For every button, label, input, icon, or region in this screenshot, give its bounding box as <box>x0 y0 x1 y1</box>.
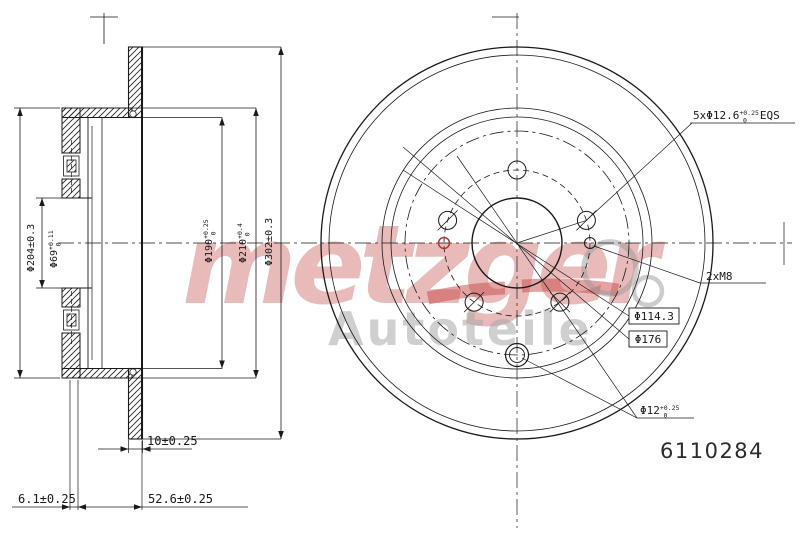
dim-label-bore: Φ69+0.110 <box>47 230 63 268</box>
hat-face-upper-inner-section <box>62 179 80 198</box>
arrowhead <box>17 370 23 378</box>
dim-label-outer-diameter: Φ302±0.3 <box>264 218 275 266</box>
arrowhead <box>253 108 259 116</box>
arrowhead <box>278 431 284 439</box>
technical-drawing-canvas: metzger Autoteile <box>0 0 800 533</box>
arrowhead <box>219 118 225 126</box>
arrowhead <box>253 370 259 378</box>
dim-label-thickness: 10±0.25 <box>147 434 198 448</box>
dim-label-hat-face-thickness: 6.1±0.25 <box>18 492 76 506</box>
arrowhead <box>17 108 23 116</box>
label-service-thread: 2xM8 <box>706 270 733 283</box>
arrowhead <box>39 198 45 206</box>
dim-label-overall-height: 52.6±0.25 <box>148 492 213 506</box>
arrowhead <box>134 504 142 510</box>
cross-section-view: Φ204±0.3 Φ69+0.110 Φ190+0.250 Φ210+0.40 … <box>12 13 284 510</box>
arrowhead <box>121 446 129 452</box>
hat-face-lower-inner-section <box>62 288 80 307</box>
label-pcd: Φ114.3 <box>634 310 674 323</box>
friction-ring-top-section <box>129 47 143 118</box>
fillet-notch-bottom <box>130 369 136 375</box>
fillet-notch-top <box>130 111 136 117</box>
hat-face-lower-section <box>62 333 80 378</box>
label-aux-circle: Φ176 <box>635 333 662 346</box>
dim-label-hat-diameter: Φ204±0.3 <box>26 224 37 272</box>
section-datum-mark <box>90 13 118 44</box>
friction-ring-bottom-section <box>129 369 143 440</box>
arrowhead <box>39 280 45 288</box>
arrowhead <box>278 47 284 55</box>
watermark: metzger Autoteile <box>182 201 665 356</box>
brake-disc-technical-drawing-page: metzger Autoteile <box>0 0 800 533</box>
arrowhead <box>78 504 86 510</box>
label-aux-hole: Φ12+0.250 <box>640 404 680 420</box>
hat-face-upper-section <box>62 108 80 153</box>
leader-aux-hole <box>522 358 637 418</box>
watermark-subtitle-text: Autoteile <box>328 302 593 356</box>
label-bolt-holes: 5xΦ12.6+0.250EQS <box>693 109 780 125</box>
part-number: 6110284 <box>660 439 764 463</box>
arrowhead <box>219 361 225 369</box>
